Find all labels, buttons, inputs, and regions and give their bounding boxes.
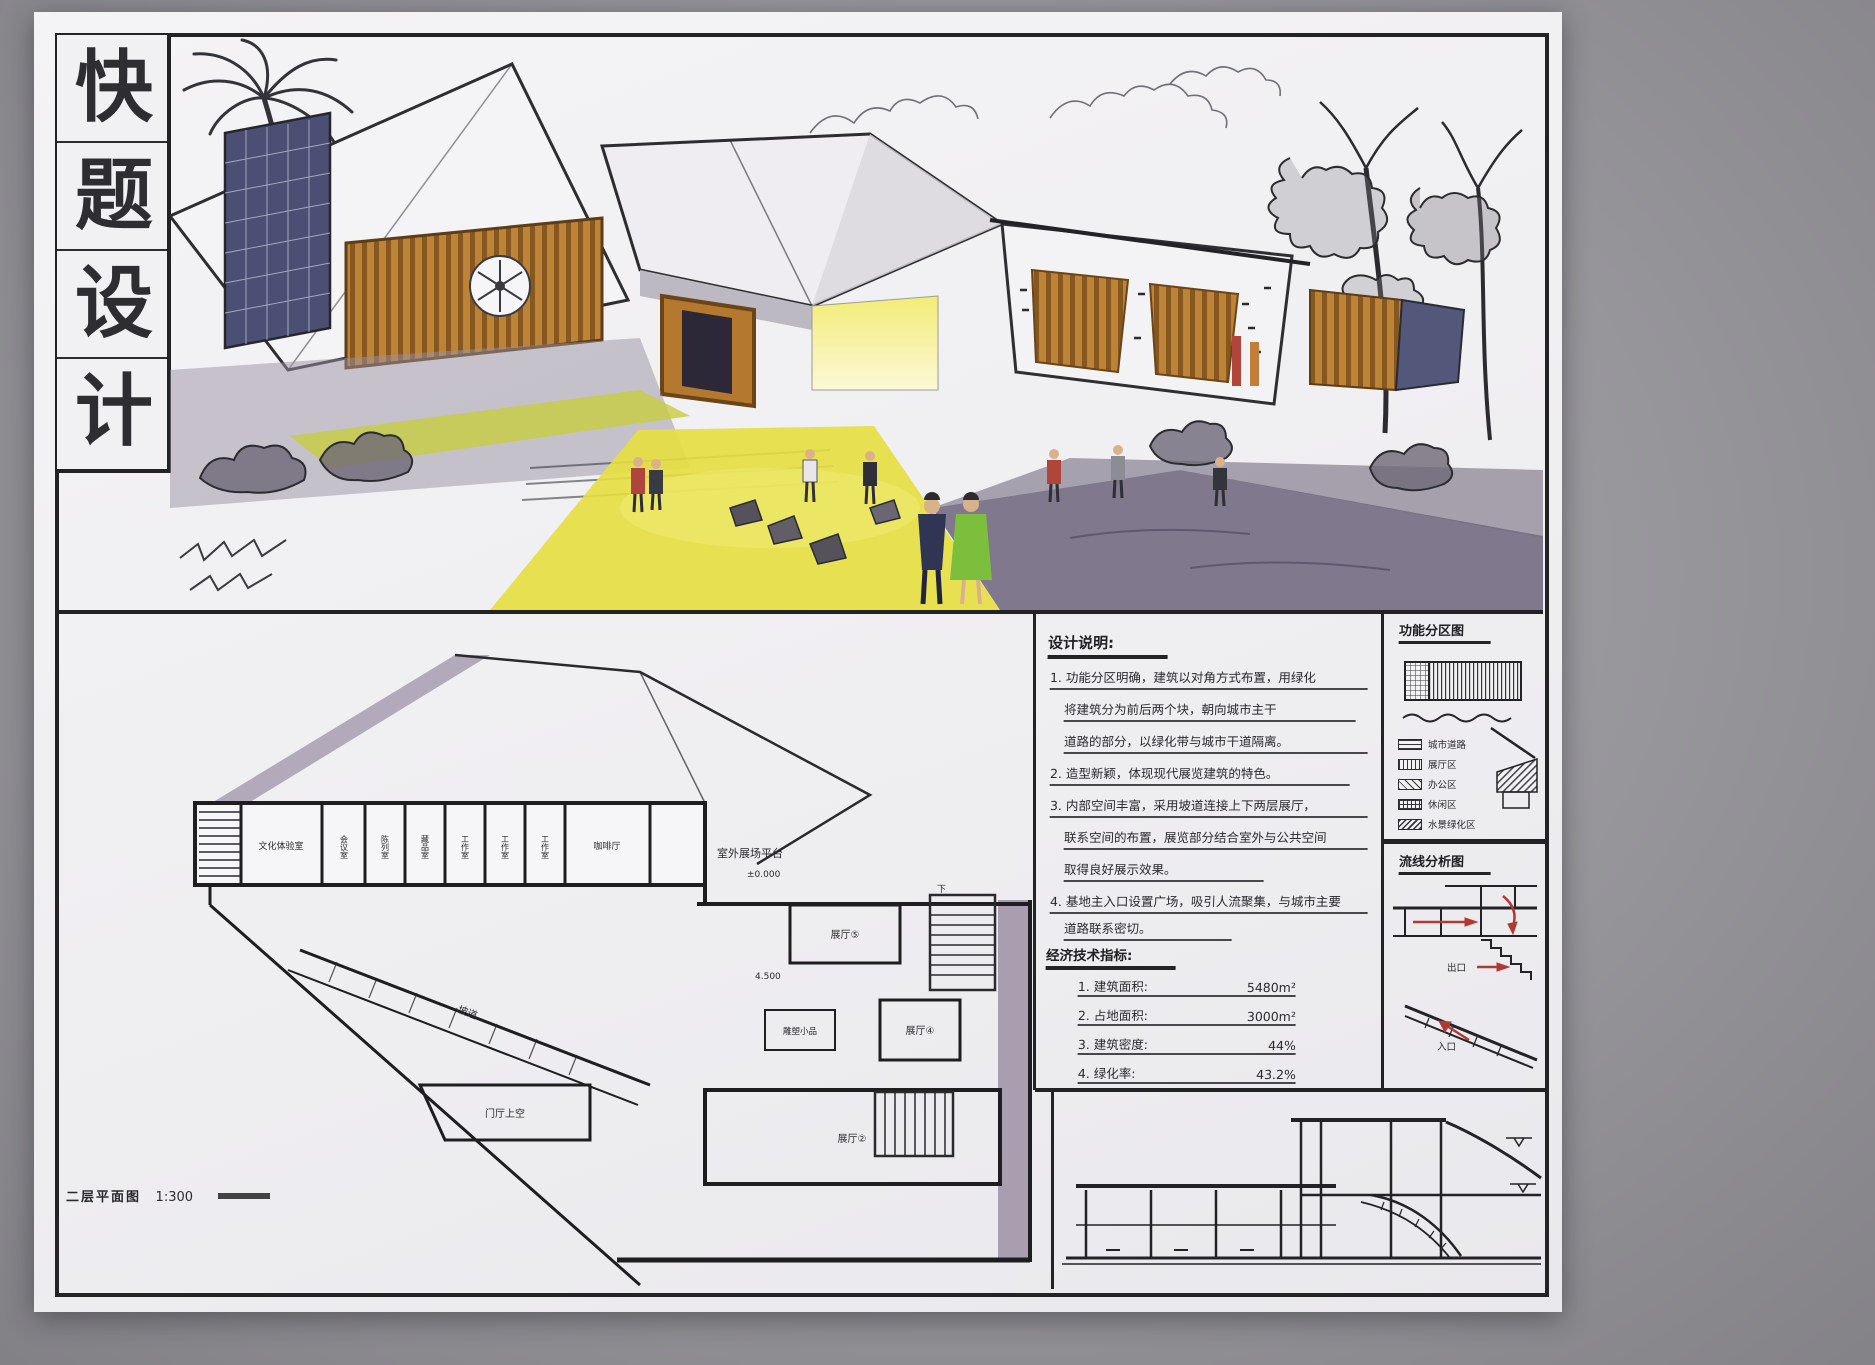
legend-label: 休闲区 [1428,797,1457,811]
indicators-heading: 经济技术指标: [1046,944,1177,970]
indicator-row: 4. 绿化率: 43.2% [1078,1059,1297,1084]
legend-row: 休闲区 [1398,796,1457,812]
title-char: 快 [57,35,167,143]
exit-label: 出口 [1447,962,1466,974]
notes-heading: 设计说明: [1048,632,1169,659]
scale-bar [218,1193,270,1199]
legend-swatch-icon [1398,799,1422,810]
lower-halls: 展厅⑤ 4.500 下 雕塑小品 展厅④ 展厅② [617,885,1030,1262]
circulation-diagram: 出口 入口 [1385,874,1543,1086]
title-char: 计 [57,359,167,465]
court-label: 雕塑小品 [783,1026,817,1037]
stair-hatch-icon [875,1092,953,1156]
entry-portal [662,296,754,406]
legend-label: 展厅区 [1428,757,1457,771]
stair-direction-label: 下 [937,885,946,895]
legend-swatch-icon [1398,759,1422,770]
legend-swatch-icon [1398,779,1422,790]
building-section-sketch [1054,1092,1543,1286]
entry-label: 入口 [1437,1042,1456,1053]
room-label: 工作室 [541,835,550,859]
title-block: 快 题 设 计 [57,35,171,473]
lit-interior-wall [812,296,938,390]
poche-band [998,900,1030,1258]
note-line: 将建筑分为前后两个块，朝向城市主干 [1064,700,1357,722]
indicator-label: 4. 绿化率: [1078,1063,1136,1082]
panel-border [1033,612,1036,1090]
panel-border [1381,612,1384,1090]
hall-label: 展厅⑤ [831,929,860,941]
legend-label: 办公区 [1428,777,1457,791]
title-char: 设 [57,251,167,359]
hall-label: 展厅② [838,1133,867,1145]
note-line: 道路联系密切。 [1064,919,1233,941]
indicator-value: 44% [1268,1038,1296,1053]
plan-scale: 1:300 [156,1190,193,1205]
banner-icon [1232,336,1241,386]
site-boundary [210,905,640,1285]
room-label: 会议室 [340,834,349,859]
indicator-row: 1. 建筑面积: 5480m² [1078,972,1297,997]
roof-band [200,655,490,810]
legend-swatch-icon [1398,819,1422,830]
note-line: 3. 内部空间丰富，采用坡道连接上下两层展厅， [1050,796,1369,818]
plan-caption: 二层平面图 1:300 [66,1186,193,1205]
note-line: 道路的部分，以绿化带与城市干道隔离。 [1064,732,1369,754]
panel-divider [1383,839,1545,844]
legend-label: 水景绿化区 [1428,817,1476,831]
note-line: 取得良好展示效果。 [1064,860,1265,882]
note-line: 联系空间的布置，展览部分结合室外与公共空间 [1064,828,1369,850]
legend-row: 城市道路 [1398,736,1466,752]
note-line: 4. 基地主入口设置广场，吸引人流聚集，与城市主要 [1050,892,1369,914]
level-label: 4.500 [755,972,781,982]
legend-swatch-icon [1398,739,1422,750]
stair-hatch-icon [930,895,995,990]
legend-row: 展厅区 [1398,756,1457,772]
title-char: 题 [57,143,167,251]
plan-caption-text: 二层平面图 [66,1190,141,1205]
banner-icon [1250,342,1259,386]
indicator-value: 43.2% [1256,1067,1296,1082]
indicator-label: 3. 建筑密度: [1078,1034,1149,1053]
terrace-label: 室外展场平台 [717,846,783,860]
hall-label: 展厅④ [906,1025,935,1037]
indicator-row: 3. 建筑密度: 44% [1078,1030,1297,1055]
foliage-outline-icon [810,67,1280,133]
indicator-value: 3000m² [1247,1009,1297,1024]
level-label: ±0.000 [747,870,781,880]
room-label: 陈列室 [381,834,390,859]
note-line: 2. 造型新颖，体现现代展览建筑的特色。 [1050,764,1351,786]
room-label: 工作室 [461,835,470,859]
circulation-heading: 流线分析图 [1399,851,1492,875]
room-strip: 文化体验室 会议室 陈列室 藏品室 工作室 工作室 工作室 咖啡厅 [195,803,705,885]
flower-decal-icon [470,256,530,316]
legend-label: 城市道路 [1428,737,1466,751]
room-label: 文化体验室 [258,840,303,852]
indicator-label: 1. 建筑面积: [1078,976,1149,995]
right-wing-facade [990,220,1310,404]
glass-curtain-wall [225,113,330,348]
indicator-value: 5480m² [1247,980,1297,995]
room-label: 藏品室 [421,834,430,859]
floor-plan-sketch: 文化体验室 会议室 陈列室 藏品室 工作室 工作室 工作室 咖啡厅 室外展场平台… [57,614,1033,1288]
perspective-sketch [170,38,1543,610]
room-label: 门厅上空 [485,1107,525,1120]
photo-of-presentation-board: 快 题 设 计 [0,0,1875,1365]
room-label: 工作室 [501,835,510,859]
indicator-label: 2. 占地面积: [1078,1005,1149,1024]
legend-row: 办公区 [1398,776,1457,792]
legend-row: 水景绿化区 [1398,816,1476,832]
ramp: 坡道 [288,950,650,1105]
indicator-row: 2. 占地面积: 3000m² [1078,1001,1297,1026]
room-label: 咖啡厅 [593,840,620,852]
note-line: 1. 功能分区明确，建筑以对角方式布置，用绿化 [1050,668,1369,690]
